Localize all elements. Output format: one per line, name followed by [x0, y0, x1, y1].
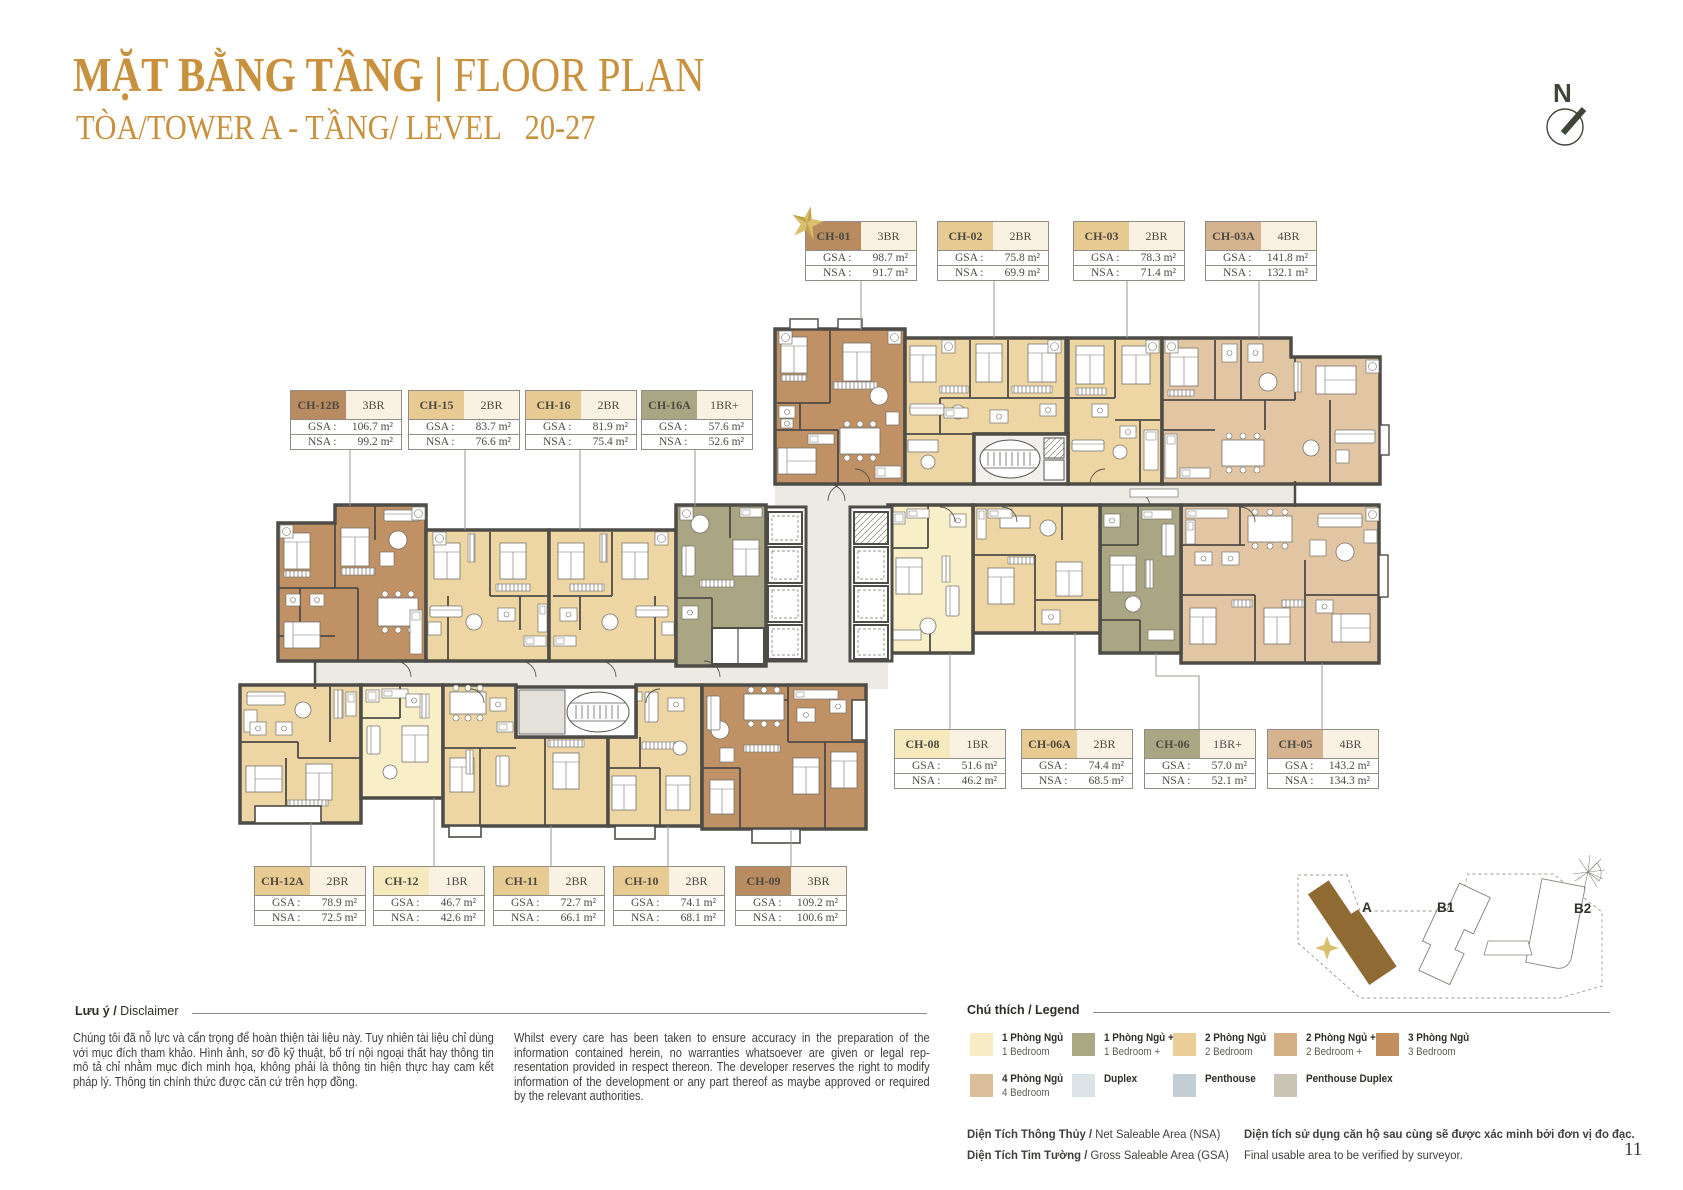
- svg-text:B2: B2: [1574, 901, 1591, 916]
- svg-text:B1: B1: [1437, 900, 1455, 915]
- svg-text:A: A: [1362, 900, 1372, 915]
- svg-text:N: N: [1553, 78, 1572, 108]
